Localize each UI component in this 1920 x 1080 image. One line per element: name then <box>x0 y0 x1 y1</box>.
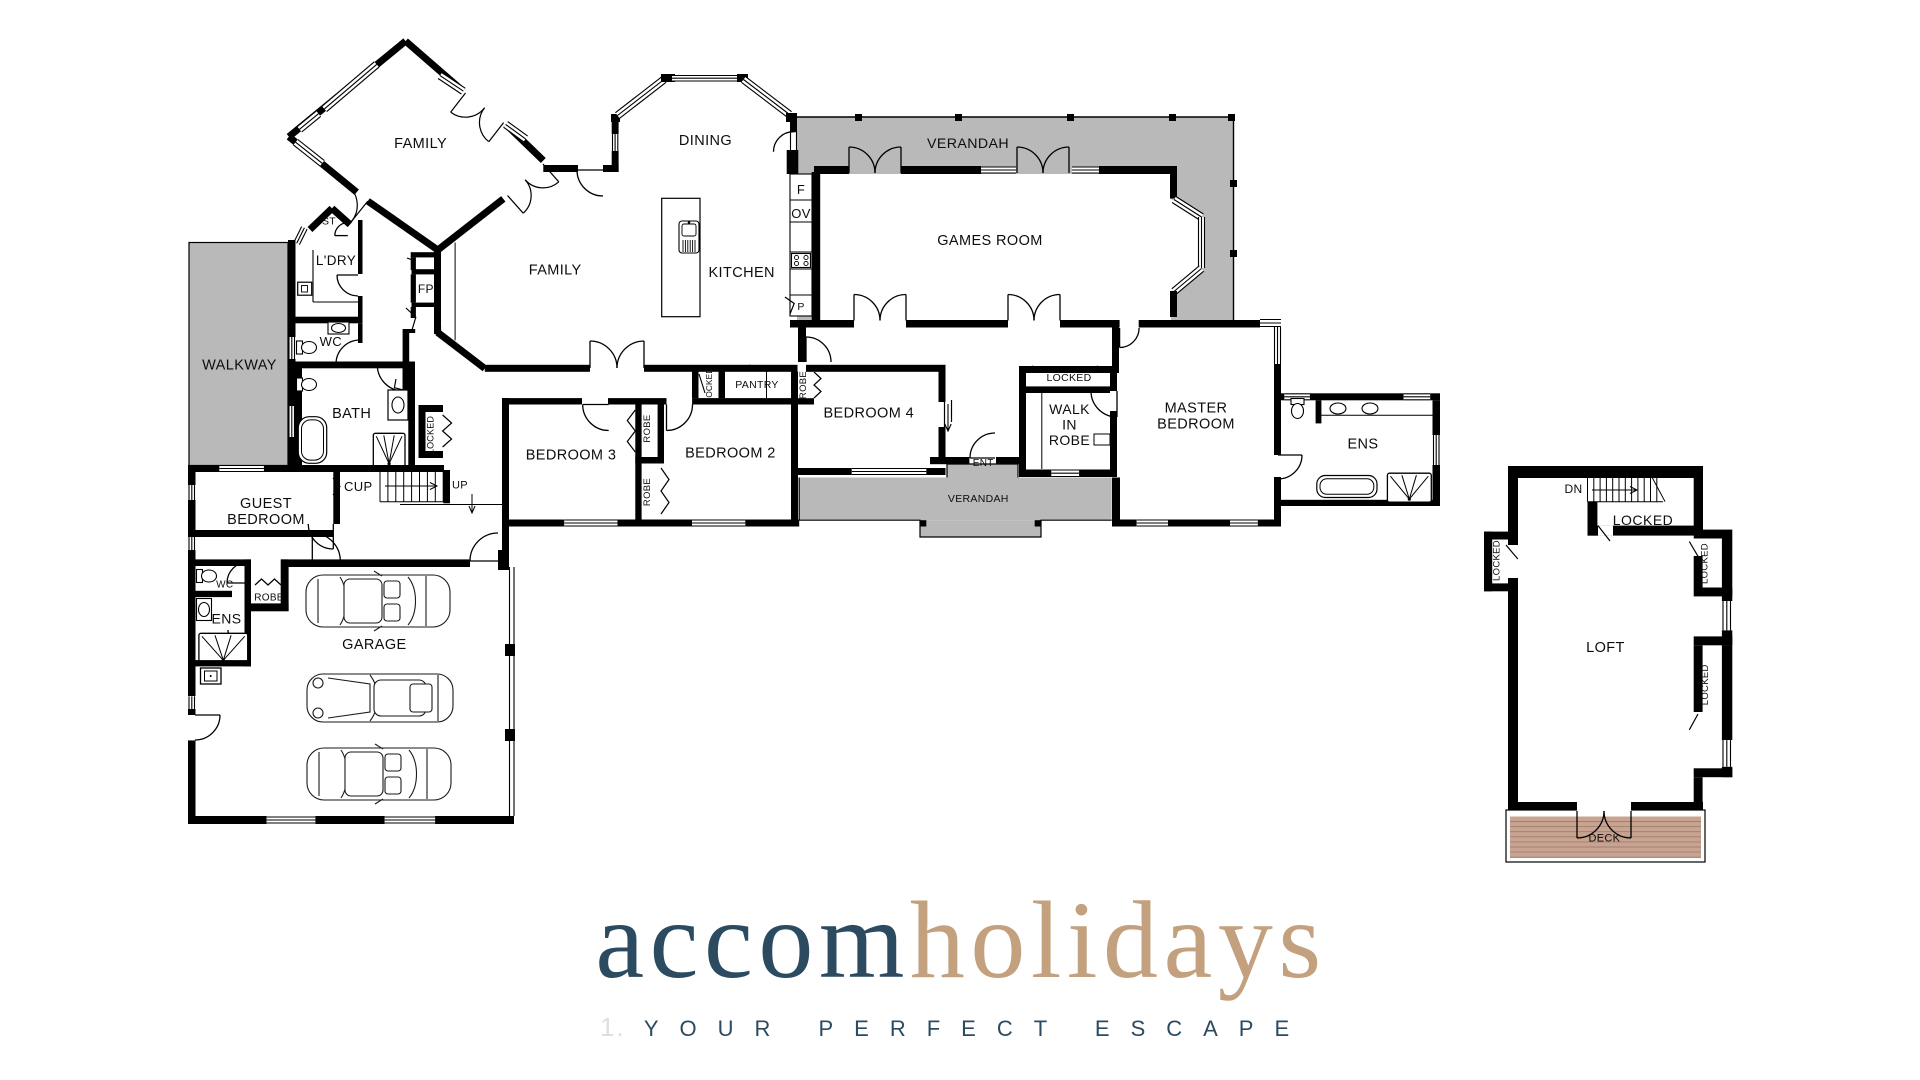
svg-text:BEDROOM: BEDROOM <box>1157 416 1235 432</box>
svg-text:FP: FP <box>418 282 434 296</box>
svg-text:BEDROOM: BEDROOM <box>227 512 305 528</box>
svg-text:WC: WC <box>216 580 233 591</box>
svg-text:PANTRY: PANTRY <box>735 379 778 391</box>
svg-text:WALKWAY: WALKWAY <box>202 357 277 373</box>
svg-text:LOCKED: LOCKED <box>1047 372 1092 384</box>
svg-text:ROBE: ROBE <box>1049 432 1090 448</box>
svg-text:ROBE: ROBE <box>642 478 653 506</box>
svg-text:accomholidays: accomholidays <box>595 879 1326 1001</box>
svg-text:ROBE: ROBE <box>798 371 809 399</box>
svg-text:UP: UP <box>452 480 468 492</box>
svg-text:ENS: ENS <box>1347 437 1378 453</box>
svg-text:LOCKED: LOCKED <box>1613 512 1674 528</box>
svg-text:GARAGE: GARAGE <box>342 637 406 653</box>
svg-text:WALK: WALK <box>1049 401 1090 417</box>
svg-text:ST: ST <box>322 216 336 228</box>
svg-text:ENS: ENS <box>212 611 242 627</box>
svg-text:MASTER: MASTER <box>1165 400 1228 416</box>
svg-text:GUEST: GUEST <box>240 496 292 512</box>
svg-text:F: F <box>797 182 805 197</box>
svg-text:DN: DN <box>1565 482 1583 496</box>
svg-text:OV: OV <box>791 206 810 221</box>
svg-text:BEDROOM 4: BEDROOM 4 <box>823 405 914 421</box>
svg-text:LOCKED: LOCKED <box>1700 543 1711 584</box>
svg-text:L'DRY: L'DRY <box>316 253 356 268</box>
svg-text:VERANDAH: VERANDAH <box>948 493 1009 505</box>
svg-text:DECK: DECK <box>1589 833 1621 845</box>
svg-text:LOCKED: LOCKED <box>1700 664 1711 705</box>
svg-text:IN: IN <box>1062 417 1077 433</box>
svg-text:DINING: DINING <box>679 133 732 149</box>
svg-text:LOCKED: LOCKED <box>705 368 714 403</box>
svg-text:WC: WC <box>320 334 342 349</box>
svg-text:BEDROOM 3: BEDROOM 3 <box>526 448 617 464</box>
svg-text:ROBE: ROBE <box>642 414 653 442</box>
svg-text:BATH: BATH <box>332 406 371 422</box>
svg-text:LOFT: LOFT <box>1586 640 1625 656</box>
svg-text:KITCHEN: KITCHEN <box>708 265 774 281</box>
svg-text:P: P <box>797 301 804 313</box>
svg-text:VERANDAH: VERANDAH <box>927 136 1009 152</box>
svg-text:GAMES ROOM: GAMES ROOM <box>937 233 1043 249</box>
svg-text:ENT: ENT <box>973 458 994 469</box>
svg-text:BEDROOM 2: BEDROOM 2 <box>685 446 776 462</box>
svg-text:YOUR PERFECT ESCAPE: YOUR PERFECT ESCAPE <box>644 1016 1310 1041</box>
svg-text:ROBE: ROBE <box>254 592 284 603</box>
svg-text:1.: 1. <box>600 1012 626 1042</box>
svg-text:FAMILY: FAMILY <box>529 263 582 279</box>
svg-text:LOCKED: LOCKED <box>426 416 436 455</box>
svg-text:CUP: CUP <box>344 479 373 494</box>
svg-text:FAMILY: FAMILY <box>394 136 447 152</box>
svg-text:LOCKED: LOCKED <box>1492 540 1503 581</box>
